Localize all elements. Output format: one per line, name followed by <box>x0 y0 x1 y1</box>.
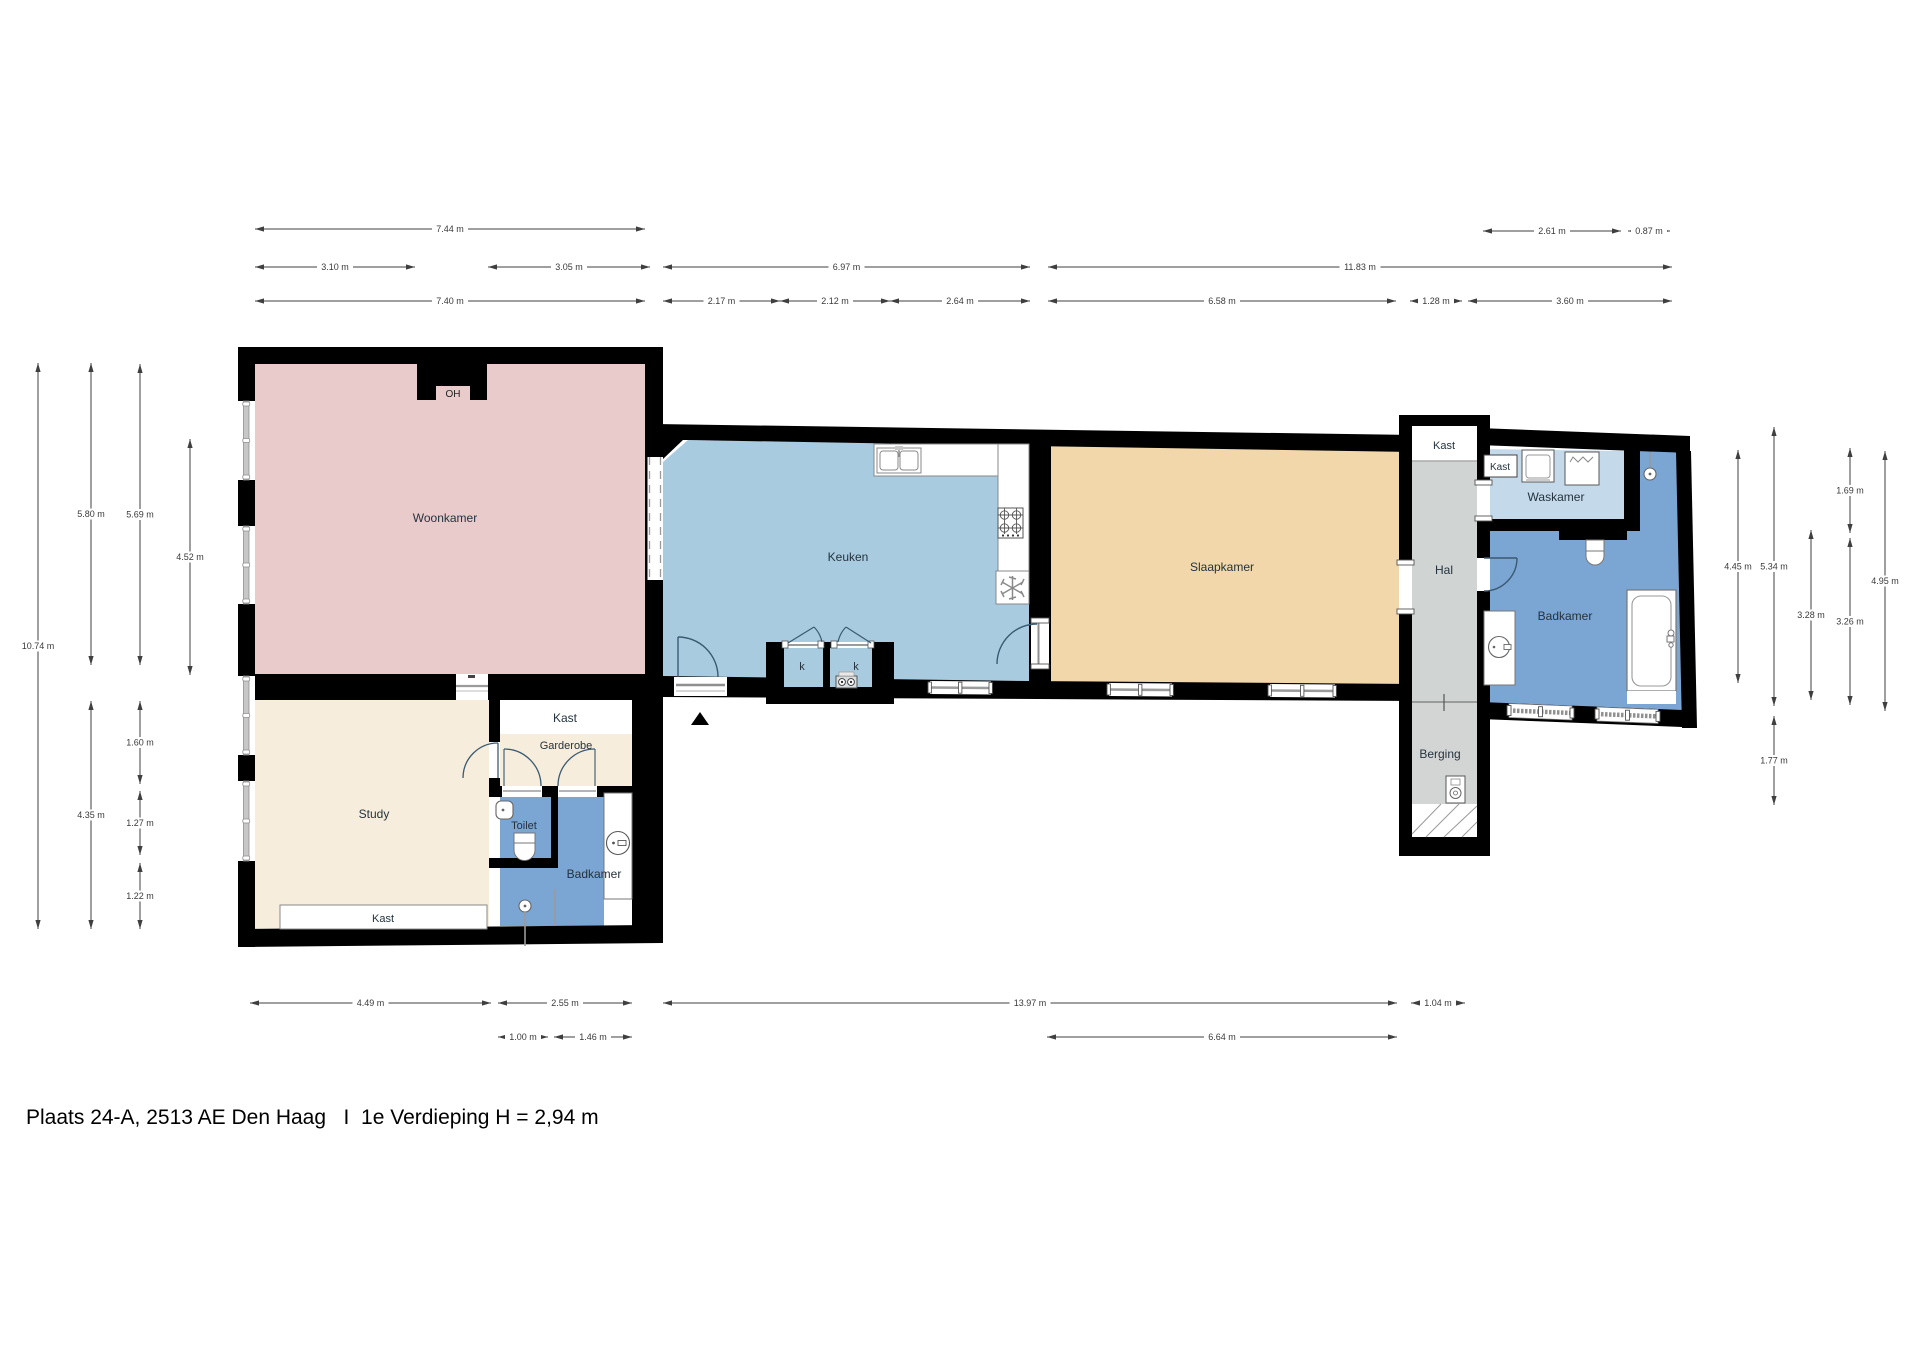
svg-text:7.40 m: 7.40 m <box>436 296 464 306</box>
svg-text:4.35 m: 4.35 m <box>77 810 105 820</box>
svg-text:3.28 m: 3.28 m <box>1797 610 1825 620</box>
svg-text:1.00 m: 1.00 m <box>509 1032 537 1042</box>
svg-text:k: k <box>853 661 859 673</box>
svg-text:2.64 m: 2.64 m <box>946 296 974 306</box>
svg-text:7.44 m: 7.44 m <box>436 224 464 234</box>
svg-text:Berging: Berging <box>1419 747 1460 761</box>
svg-text:5.80 m: 5.80 m <box>77 509 105 519</box>
svg-text:1.46 m: 1.46 m <box>579 1032 607 1042</box>
svg-text:0.87 m: 0.87 m <box>1635 226 1663 236</box>
svg-text:5.69 m: 5.69 m <box>126 510 154 520</box>
svg-text:k: k <box>799 661 805 673</box>
svg-text:4.52 m: 4.52 m <box>176 552 204 562</box>
svg-text:1.27 m: 1.27 m <box>126 818 154 828</box>
svg-text:Woonkamer: Woonkamer <box>413 511 477 525</box>
svg-text:Kast: Kast <box>372 913 394 925</box>
svg-text:Plaats 24-A, 2513 AE Den Haag: Plaats 24-A, 2513 AE Den Haag I 1e Verdi… <box>26 1106 599 1129</box>
svg-text:10.74 m: 10.74 m <box>22 641 55 651</box>
svg-text:Toilet: Toilet <box>511 820 537 832</box>
svg-text:2.55 m: 2.55 m <box>551 998 579 1008</box>
svg-text:Garderobe: Garderobe <box>540 740 593 752</box>
svg-text:Waskamer: Waskamer <box>1528 490 1585 504</box>
svg-text:1.28 m: 1.28 m <box>1422 296 1450 306</box>
svg-text:1.04 m: 1.04 m <box>1424 998 1452 1008</box>
svg-text:Badkamer: Badkamer <box>567 867 622 881</box>
svg-text:Badkamer: Badkamer <box>1538 609 1593 623</box>
svg-text:6.64 m: 6.64 m <box>1208 1032 1236 1042</box>
svg-text:5.34 m: 5.34 m <box>1760 562 1788 572</box>
svg-text:6.58 m: 6.58 m <box>1208 296 1236 306</box>
svg-text:3.10 m: 3.10 m <box>321 262 349 272</box>
svg-text:Slaapkamer: Slaapkamer <box>1190 560 1254 574</box>
svg-text:4.95 m: 4.95 m <box>1871 576 1899 586</box>
svg-text:4.49 m: 4.49 m <box>357 998 385 1008</box>
svg-text:3.26 m: 3.26 m <box>1836 617 1864 627</box>
svg-text:1.77 m: 1.77 m <box>1760 756 1788 766</box>
svg-text:13.97 m: 13.97 m <box>1014 998 1047 1008</box>
svg-text:Hal: Hal <box>1435 563 1453 577</box>
svg-text:OH: OH <box>446 389 461 400</box>
svg-text:1.69 m: 1.69 m <box>1836 486 1864 496</box>
svg-text:6.97 m: 6.97 m <box>833 262 861 272</box>
svg-text:1.60 m: 1.60 m <box>126 738 154 748</box>
svg-text:2.12 m: 2.12 m <box>821 296 849 306</box>
svg-text:3.60 m: 3.60 m <box>1556 296 1584 306</box>
svg-text:2.61 m: 2.61 m <box>1538 226 1566 236</box>
svg-text:1.22 m: 1.22 m <box>126 891 154 901</box>
svg-text:Keuken: Keuken <box>828 550 869 564</box>
svg-text:Kast: Kast <box>1490 462 1510 473</box>
svg-text:3.05 m: 3.05 m <box>555 262 583 272</box>
svg-text:2.17 m: 2.17 m <box>708 296 736 306</box>
svg-text:Kast: Kast <box>553 711 578 725</box>
svg-text:Kast: Kast <box>1433 440 1455 452</box>
svg-text:4.45 m: 4.45 m <box>1724 562 1752 572</box>
svg-text:Study: Study <box>359 807 390 821</box>
svg-text:11.83 m: 11.83 m <box>1344 262 1376 272</box>
